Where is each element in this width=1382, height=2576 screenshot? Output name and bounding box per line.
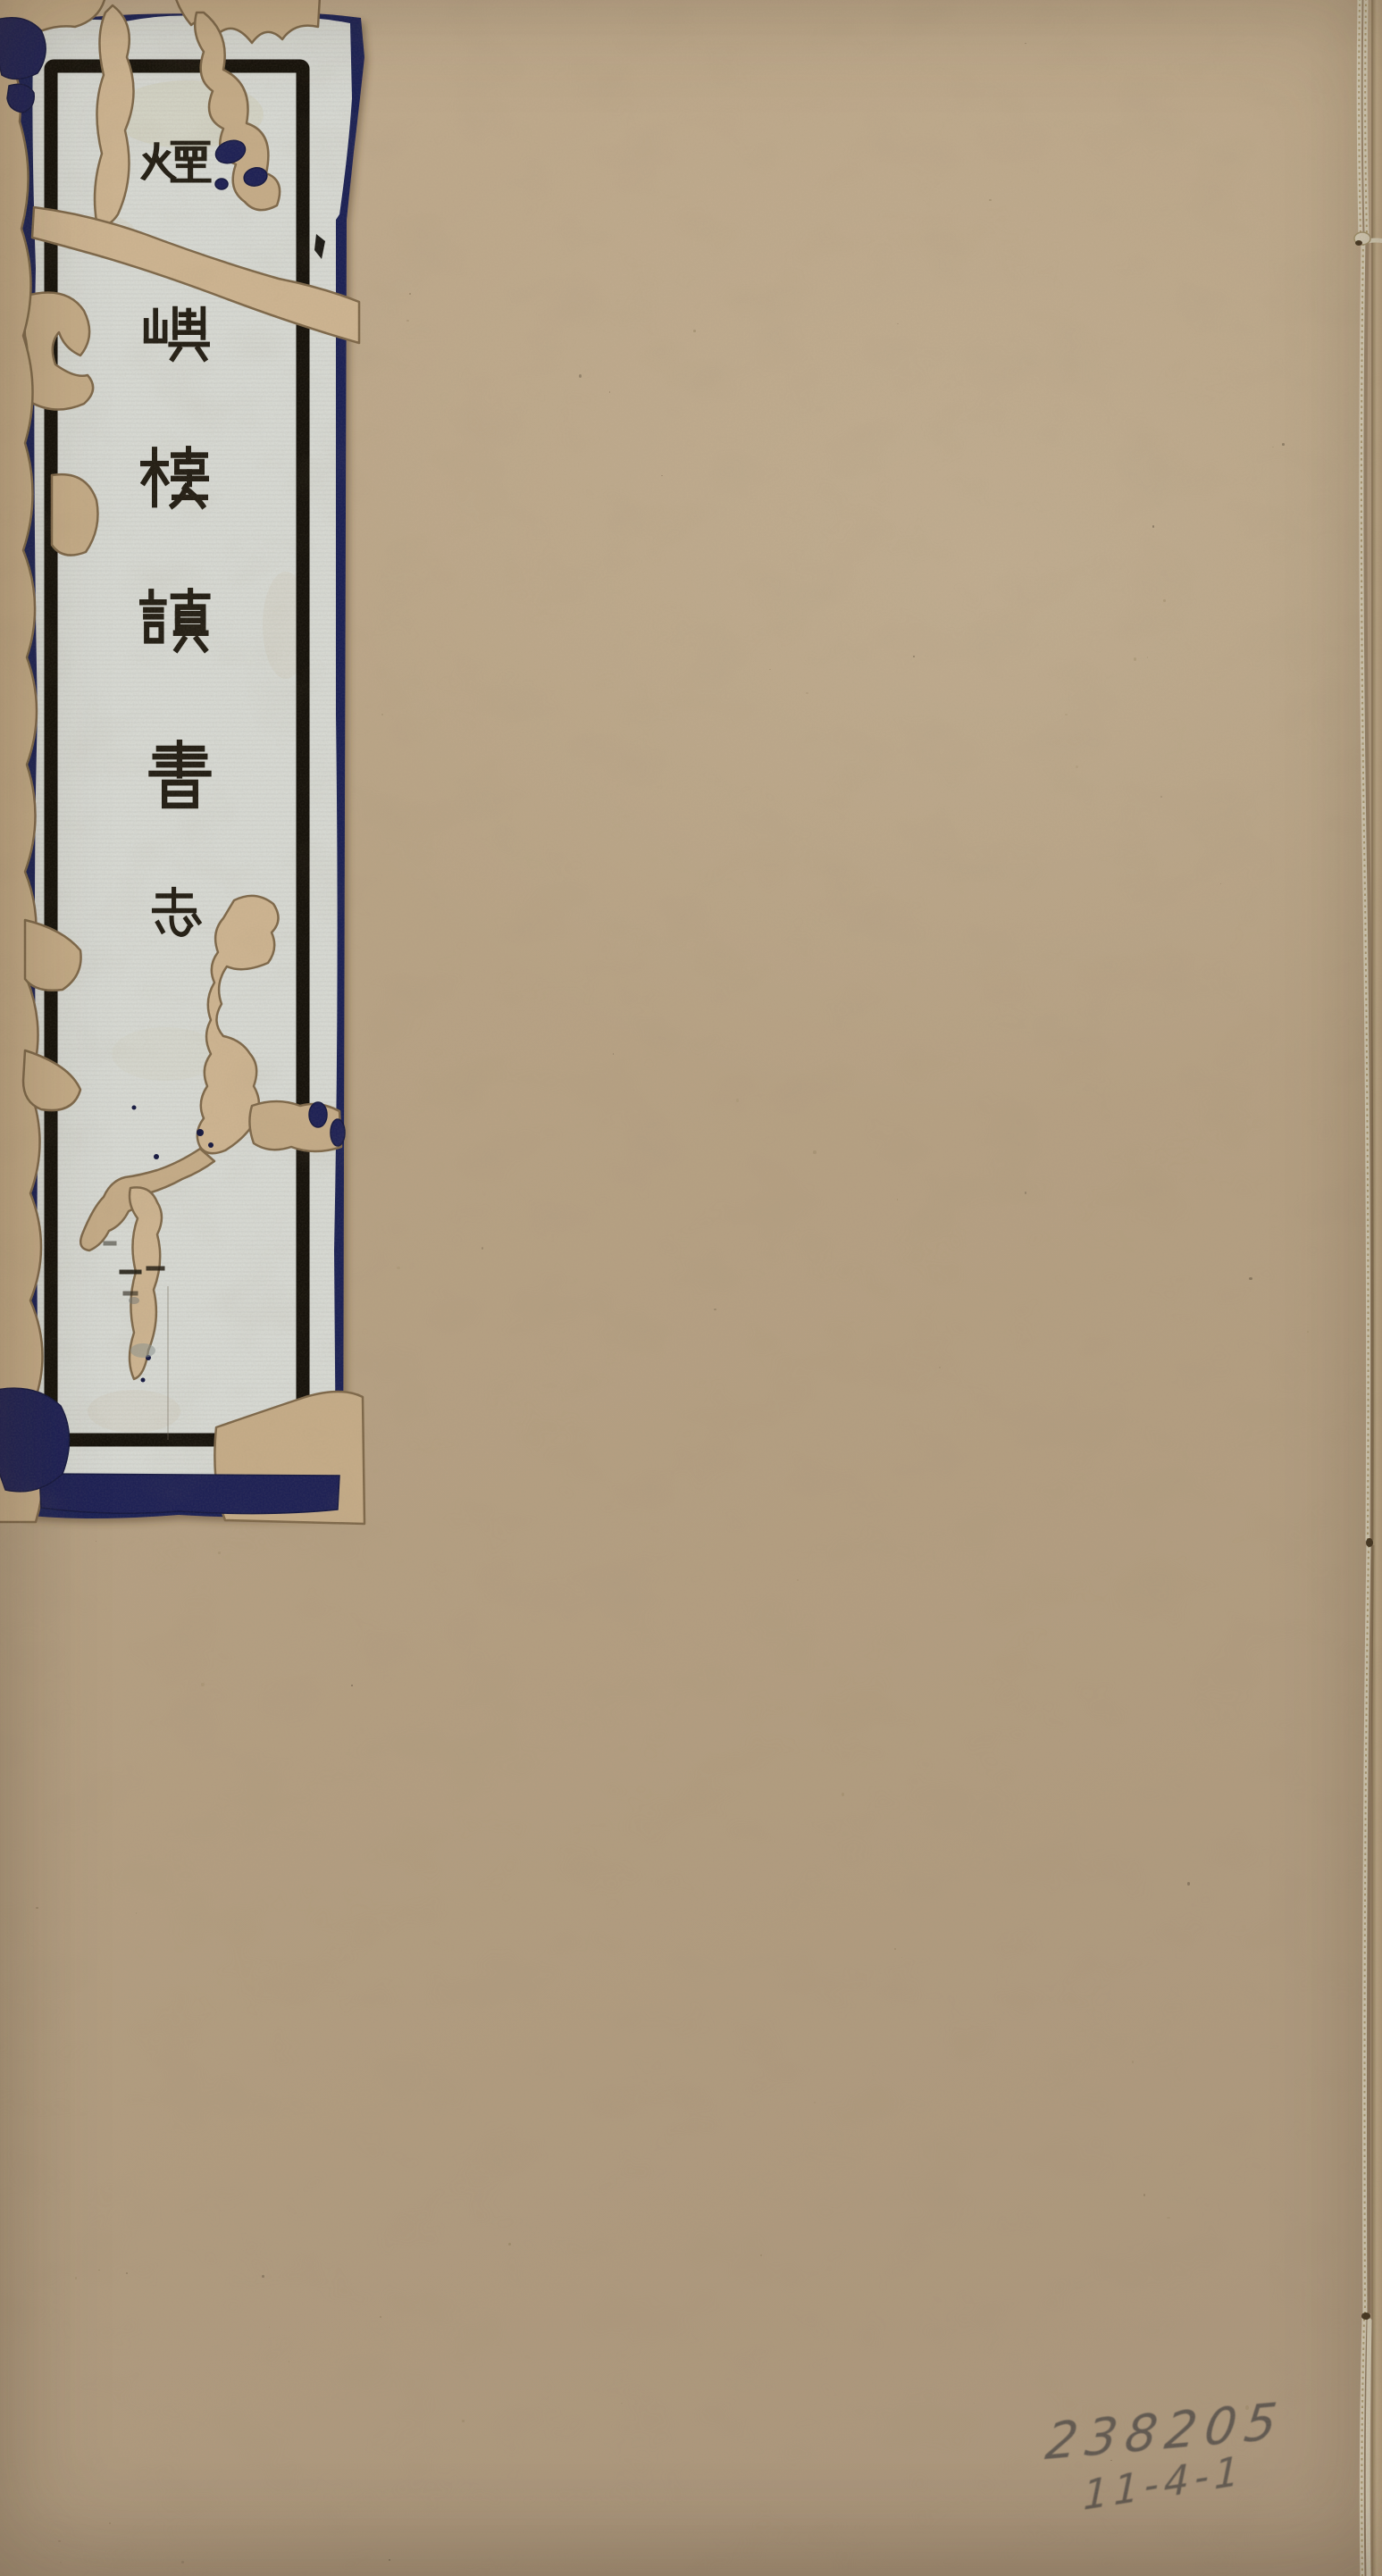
paper-speck	[1167, 2217, 1169, 2219]
paper-speck	[579, 374, 582, 378]
paper-speck	[894, 1948, 895, 1949]
book-cover-scan: 238205 11-4-1 煙嶼樓讀書志 一	[0, 0, 1382, 2576]
paper-speck	[1025, 1192, 1027, 1194]
paper-speck	[389, 2559, 390, 2561]
cord-segment	[1359, 0, 1361, 236]
backing-patch	[309, 1102, 327, 1127]
paper-speck	[406, 320, 408, 322]
paper-speck	[508, 2243, 511, 2246]
paper-speck	[181, 2561, 184, 2563]
paper-speck	[897, 1199, 898, 1200]
paper-speck	[126, 2272, 128, 2274]
paper-speck	[897, 323, 898, 325]
stitch-hole	[1366, 1538, 1373, 1547]
paper-speck	[736, 1099, 739, 1101]
backing-patch	[331, 1119, 345, 1146]
paper-speck	[58, 2540, 61, 2543]
backing-patch	[215, 179, 228, 189]
paper-speck	[1025, 43, 1026, 44]
paper-speck	[1272, 447, 1273, 447]
paper-speck	[1132, 2061, 1135, 2062]
ink-speck	[154, 1154, 159, 1159]
cord-segment	[1368, 2321, 1369, 2576]
paper-speck	[769, 669, 771, 670]
paper-speck	[814, 2102, 816, 2103]
paper-speck	[218, 1551, 220, 1554]
paper-speck	[262, 2275, 264, 2277]
paper-speck	[714, 1309, 716, 1310]
paper-speck	[1143, 2194, 1145, 2196]
paper-speck	[621, 2403, 623, 2405]
paper-speck	[693, 330, 696, 332]
paper-speck	[1147, 657, 1148, 657]
paper-speck	[989, 199, 992, 201]
paper-speck	[1282, 443, 1285, 446]
paper-speck	[201, 1683, 204, 1686]
paper-speck	[974, 2403, 976, 2404]
paper-tear	[249, 1101, 341, 1151]
ink-speck	[208, 1142, 214, 1148]
paper-speck	[75, 2277, 78, 2279]
paper-speck	[1307, 1331, 1309, 1333]
paper-speck	[351, 1685, 353, 1685]
paper-speck	[806, 692, 808, 694]
binding-thread	[1342, 0, 1382, 2576]
paper-speck	[913, 656, 915, 657]
paper-speck	[609, 391, 611, 392]
title-char-glyph-3	[143, 448, 206, 506]
paper-speck	[1163, 599, 1166, 602]
paper-speck	[813, 1150, 816, 1154]
paper-speck	[1160, 796, 1162, 798]
paper-speck	[1152, 525, 1155, 528]
paper-speck	[1076, 765, 1078, 768]
paper-speck	[842, 1793, 844, 1796]
paper-speck	[96, 1541, 97, 1542]
paper-speck	[397, 1267, 399, 1269]
paper-speck	[1187, 1882, 1190, 1886]
paper-speck	[269, 2327, 270, 2328]
title-label	[0, 0, 384, 1536]
paper-speck	[939, 1367, 941, 1368]
paper-speck	[109, 2522, 110, 2523]
paper-speck	[380, 2316, 382, 2318]
paper-speck	[409, 293, 411, 295]
paper-speck	[289, 2361, 290, 2362]
paper-speck	[760, 2254, 762, 2255]
paper-speck	[98, 2270, 99, 2271]
ink-speck	[197, 1129, 204, 1136]
ink-speck	[132, 1106, 137, 1110]
paper-speck	[797, 1579, 799, 1581]
paper-speck	[36, 1907, 38, 1909]
stitch-hole	[1361, 2313, 1370, 2320]
paper-speck	[1065, 714, 1068, 715]
paper-speck	[37, 2488, 38, 2488]
stitch-hole	[1355, 240, 1362, 246]
smudge	[129, 1297, 139, 1304]
ink-speck	[141, 1378, 146, 1383]
paper-speck	[661, 475, 663, 477]
paper-speck	[482, 1247, 483, 1250]
backing-patch	[0, 1388, 70, 1492]
paper-speck	[60, 2562, 63, 2563]
smudge	[130, 1343, 155, 1358]
paper-speck	[136, 1912, 137, 1914]
paper-speck	[613, 1053, 615, 1055]
paper-speck	[1249, 1277, 1252, 1280]
paper-speck	[462, 2420, 465, 2421]
backing-patch	[39, 1474, 339, 1514]
paper-speck	[901, 1957, 903, 1958]
handwritten-annotations: 238205 11-4-1	[1043, 2393, 1291, 2515]
paper-speck	[1134, 657, 1136, 661]
paper-speck	[1220, 883, 1221, 884]
